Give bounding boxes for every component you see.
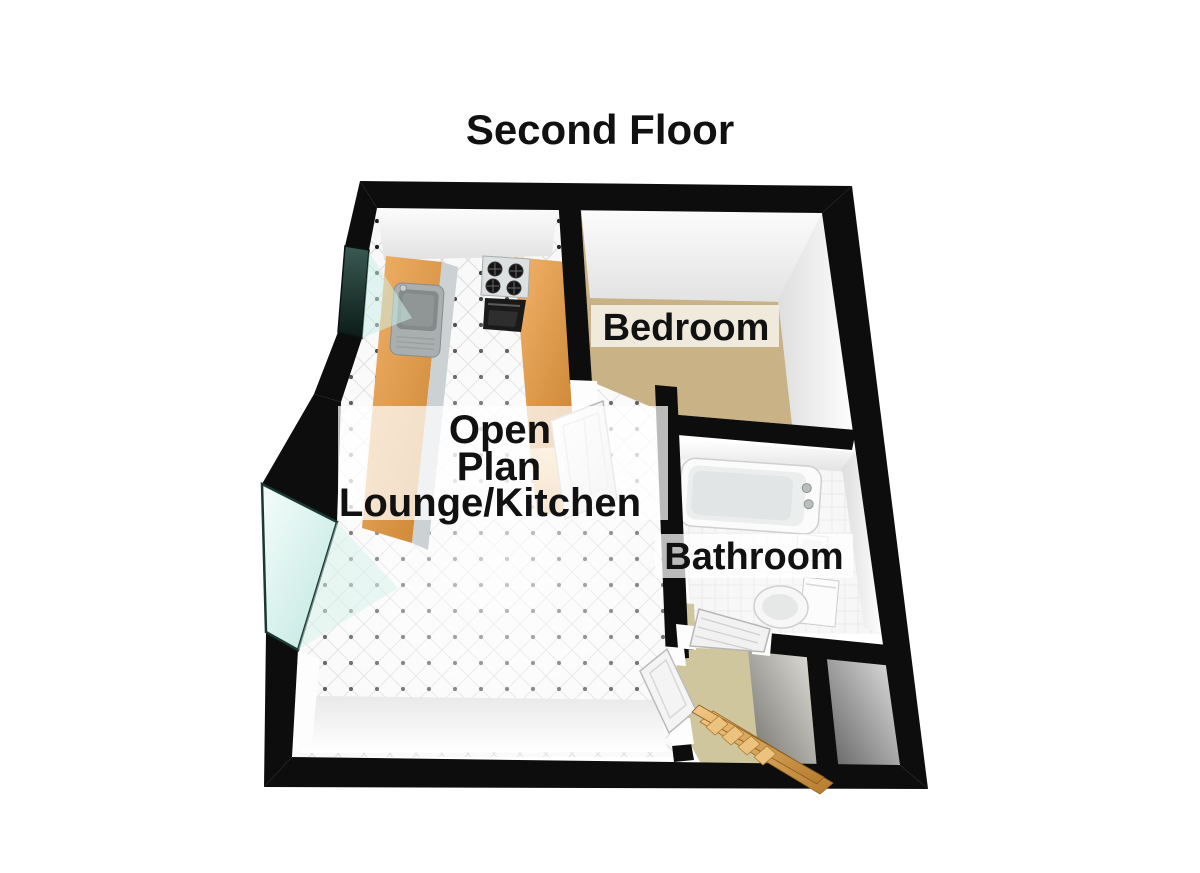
kitchen-top-wall-face <box>377 202 558 260</box>
page-title: Second Floor <box>466 106 734 153</box>
gas-hob-icon <box>481 256 530 298</box>
bedroom-label: Bedroom <box>603 307 770 349</box>
tap-icon <box>804 499 814 509</box>
lounge-bottom-wall-face <box>300 696 668 753</box>
faucet-icon <box>400 285 407 292</box>
floor-plan-svg: Open Plan Lounge/Kitchen Bedroom Bathroo… <box>0 0 1200 873</box>
tap-icon <box>802 483 812 493</box>
floor-plan-image: Open Plan Lounge/Kitchen Bedroom Bathroo… <box>0 0 1200 873</box>
bathroom-label: Bathroom <box>664 536 843 578</box>
bathtub-icon <box>678 457 822 535</box>
oven-icon <box>483 298 526 332</box>
wall-top <box>360 181 852 213</box>
lounge-label-line3: Lounge/Kitchen <box>339 481 641 525</box>
